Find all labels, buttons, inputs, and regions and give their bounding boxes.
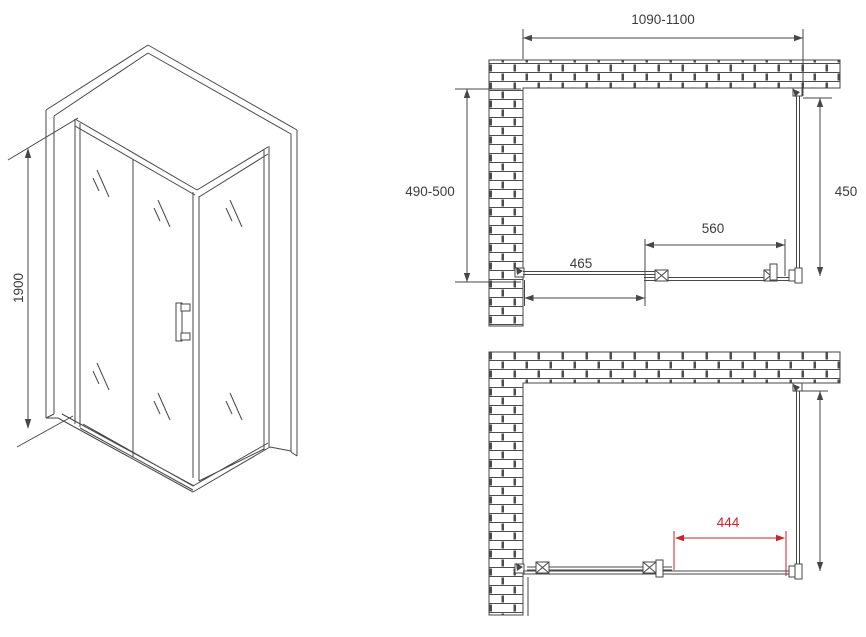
dimension-opening-444: 444 [674, 515, 786, 576]
door-dim-label: 560 [702, 221, 725, 236]
dimension-side-450: 450 [803, 98, 857, 276]
opening-dim-label: 444 [717, 515, 740, 530]
depth-dim-label: 490-500 [405, 184, 455, 199]
height-dim-label: 1900 [11, 273, 26, 303]
side-panel-top-plan [793, 88, 802, 272]
fixed-panel [523, 272, 662, 275]
roller [536, 562, 549, 573]
walls-top-plan [489, 60, 840, 326]
wall-right-3d [148, 45, 297, 456]
width-dim-label: 1090-1100 [631, 12, 695, 27]
rail-assembly-bottom-plan [515, 560, 802, 616]
plan-view-top: 1090-1100 490-500 450 560 46 [405, 12, 857, 326]
side-dim-label: 450 [835, 184, 858, 199]
roller [655, 270, 668, 281]
fixed-dim-label: 465 [570, 256, 593, 271]
door-handle-top-plan [770, 264, 777, 280]
door-handle-bottom-plan [656, 560, 663, 577]
isometric-view: 1900 [8, 45, 297, 492]
corner-assembly [789, 268, 802, 283]
dimension-door-560: 560 [645, 221, 785, 306]
glass-marks [93, 170, 242, 420]
shower-base [46, 414, 291, 492]
roller [643, 562, 656, 573]
dimension-fixed-465: 465 [525, 256, 646, 306]
plan-view-bottom: 444 [489, 352, 840, 616]
door-handle [176, 303, 190, 341]
walls-bottom-plan [489, 352, 840, 615]
technical-drawing-page: 1900 [0, 0, 866, 637]
enclosure-frame [75, 119, 269, 481]
rail-assembly-top-plan [515, 264, 802, 283]
drawing-canvas: 1900 [0, 0, 866, 637]
dimension-side-unlabeled [802, 391, 828, 571]
corner-assembly [789, 564, 802, 579]
side-panel-bottom-plan [793, 383, 802, 568]
dimension-height-1900: 1900 [8, 118, 78, 447]
